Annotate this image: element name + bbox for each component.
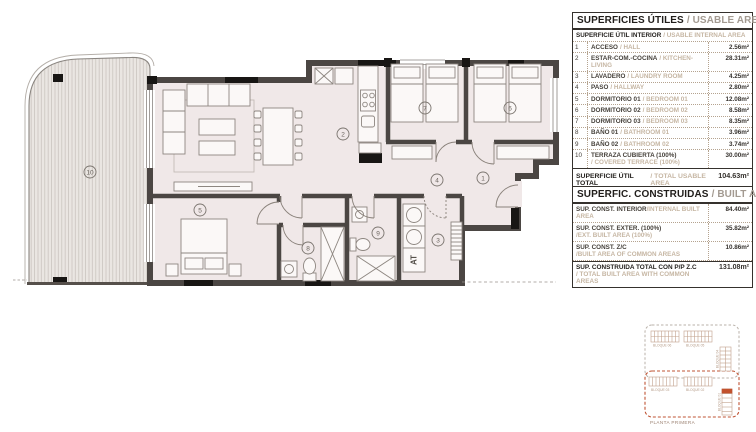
row-value: 28.31m² bbox=[708, 53, 752, 70]
row-value: 3.74m² bbox=[708, 139, 752, 149]
floor-label: PLANTA PRIMERA bbox=[650, 420, 696, 425]
row-value: 3.96m² bbox=[708, 128, 752, 138]
svg-text:3: 3 bbox=[436, 237, 440, 244]
row-name: BAÑO 01/ BATHROOM 01 bbox=[588, 128, 708, 138]
usable-table-title: SUPERFICIES ÚTILES/ USABLE AREA bbox=[573, 13, 752, 30]
table-row: 6DORMITORIO 02/ BEDROOM 028.58m² bbox=[573, 105, 752, 116]
usable-total-value: 104.63m² bbox=[718, 171, 749, 180]
row-name: SUP. CONST. Z/C/BUILT AREA OF COMMON ARE… bbox=[573, 242, 708, 260]
closet bbox=[497, 146, 549, 159]
row-value: 4.25m² bbox=[708, 72, 752, 82]
table-row: SUP. CONST. EXTER. (100%)/EXT. BUILT ARE… bbox=[573, 223, 752, 242]
table-row: 10TERRAZA CUBIERTA (100%)/ COVERED TERRA… bbox=[573, 150, 752, 167]
block-06-label: BLOQUE 06 bbox=[653, 344, 671, 348]
row-value: 2.80m² bbox=[708, 83, 752, 93]
svg-text:10: 10 bbox=[86, 169, 94, 176]
block-02-label: BLOQUE 02 bbox=[686, 388, 704, 392]
row-name: ACCESO/ HALL bbox=[588, 42, 708, 52]
row-value: 12.08m² bbox=[708, 94, 752, 104]
row-number: 4 bbox=[573, 83, 588, 93]
tv-console bbox=[174, 182, 252, 191]
window-bedroom02 bbox=[550, 78, 562, 132]
vent-ladder bbox=[451, 222, 462, 260]
table-row: SUP. CONST. INTERIOR/INTERNAL BUILT AREA… bbox=[573, 204, 752, 223]
highlighted-unit bbox=[722, 389, 732, 394]
svg-text:1: 1 bbox=[481, 175, 485, 182]
toilet-icon bbox=[350, 238, 370, 251]
row-number: 10 bbox=[573, 150, 588, 167]
svg-text:8: 8 bbox=[306, 245, 310, 252]
closet bbox=[392, 146, 432, 159]
terrace-glass-door-living bbox=[144, 90, 155, 168]
shower-icon bbox=[321, 227, 344, 281]
row-name: PASO/ HALLWAY bbox=[588, 83, 708, 93]
table-row: 5DORMITORIO 01/ BEDROOM 0112.08m² bbox=[573, 94, 752, 105]
built-total-row: SUP. CONSTRUIDA TOTAL CON P/P Z.C / TOTA… bbox=[573, 261, 752, 287]
kitchen-counter bbox=[358, 66, 381, 153]
row-value: 10.86m² bbox=[708, 242, 752, 260]
row-number: 1 bbox=[573, 42, 588, 52]
table-row: SUP. CONST. Z/C/BUILT AREA OF COMMON ARE… bbox=[573, 242, 752, 261]
row-value: 8.35m² bbox=[708, 117, 752, 127]
row-name: BAÑO 02/ BATHROOM 02 bbox=[588, 139, 708, 149]
toilet-icon bbox=[303, 258, 316, 281]
table-row: 2ESTAR-COM.-COCINA/ KITCHEN-LIVING28.31m… bbox=[573, 53, 752, 71]
row-name: ESTAR-COM.-COCINA/ KITCHEN-LIVING bbox=[588, 53, 708, 70]
row-name: SUP. CONST. INTERIOR/INTERNAL BUILT AREA bbox=[573, 204, 708, 222]
title-es: SUPERFICIES ÚTILES bbox=[577, 15, 684, 26]
built-area-table: SUPERFIC. CONSTRUIDAS/ BUILT AREA SUP. C… bbox=[572, 186, 753, 288]
row-number: 2 bbox=[573, 53, 588, 70]
block-01-label: BLOQUE 01 bbox=[718, 393, 722, 411]
coffee-table-icon bbox=[199, 119, 235, 135]
table-row: 7DORMITORIO 03/ BEDROOM 038.35m² bbox=[573, 117, 752, 128]
kitchen-cabinet bbox=[359, 143, 381, 153]
row-name: SUP. CONST. EXTER. (100%)/EXT. BUILT ARE… bbox=[573, 223, 708, 241]
row-value: 30.00m² bbox=[708, 150, 752, 167]
table-row: 9BAÑO 02/ BATHROOM 023.74m² bbox=[573, 139, 752, 150]
block-05-label: BLOQUE 05 bbox=[686, 344, 704, 348]
row-name: LAVADERO/ LAUNDRY ROOM bbox=[588, 72, 708, 82]
terrace-glass-door-bedroom01 bbox=[144, 204, 155, 262]
block-05-grid bbox=[684, 331, 712, 342]
nightstand bbox=[166, 264, 178, 276]
terrace-column bbox=[53, 74, 63, 82]
at-label: AT bbox=[410, 255, 419, 265]
table-row: 4PASO/ HALLWAY2.80m² bbox=[573, 83, 752, 94]
built-total-value: 131.08m² bbox=[705, 264, 749, 285]
row-number: 8 bbox=[573, 128, 588, 138]
block-04-grid bbox=[720, 347, 731, 371]
floorplan-sheet: 1 2 3 4 5 6 7 8 9 10 AT bbox=[0, 0, 756, 432]
row-number: 3 bbox=[573, 72, 588, 82]
svg-text:7: 7 bbox=[423, 105, 427, 112]
row-value: 8.58m² bbox=[708, 105, 752, 115]
table-row: 3LAVADERO/ LAUNDRY ROOM4.25m² bbox=[573, 72, 752, 83]
terrace bbox=[13, 53, 154, 284]
row-name: DORMITORIO 03/ BEDROOM 03 bbox=[588, 117, 708, 127]
block-03-grid bbox=[649, 377, 677, 386]
usable-area-table: SUPERFICIES ÚTILES/ USABLE AREA SUPERFIC… bbox=[572, 12, 753, 191]
table-row: 8BAÑO 01/ BATHROOM 013.96m² bbox=[573, 128, 752, 139]
sink-icon bbox=[352, 207, 367, 222]
row-name: DORMITORIO 01/ BEDROOM 01 bbox=[588, 94, 708, 104]
row-value: 84.40m² bbox=[708, 204, 752, 222]
shower-icon bbox=[357, 256, 395, 281]
row-value: 35.82m² bbox=[708, 223, 752, 241]
usable-rows: 1ACCESO/ HALL2.56m²2ESTAR-COM.-COCINA/ K… bbox=[573, 42, 752, 168]
row-number: 7 bbox=[573, 117, 588, 127]
svg-text:6: 6 bbox=[508, 105, 512, 112]
block-01-grid bbox=[722, 389, 732, 415]
block-02-grid bbox=[684, 377, 712, 386]
terrace-edge-mark bbox=[53, 277, 67, 282]
block-03-label: BLOQUE 03 bbox=[651, 388, 669, 392]
row-number: 5 bbox=[573, 94, 588, 104]
built-table-title: SUPERFIC. CONSTRUIDAS/ BUILT AREA bbox=[573, 187, 752, 204]
usable-table-subheader: SUPERFICIE ÚTIL INTERIOR/ USABLE INTERNA… bbox=[573, 30, 752, 42]
row-number: 6 bbox=[573, 105, 588, 115]
key-plan: BLOQUE 06 BLOQUE 05 BLOQUE 04 BLOQUE 03 … bbox=[645, 325, 739, 425]
table-row: 1ACCESO/ HALL2.56m² bbox=[573, 42, 752, 53]
title-en: / USABLE AREA bbox=[687, 15, 756, 26]
coffee-table-icon bbox=[199, 141, 235, 155]
row-value: 2.56m² bbox=[708, 42, 752, 52]
svg-text:4: 4 bbox=[435, 177, 439, 184]
block-04-label: BLOQUE 04 bbox=[716, 350, 720, 368]
nightstand bbox=[229, 264, 241, 276]
svg-text:5: 5 bbox=[198, 207, 202, 214]
sink-icon bbox=[281, 261, 297, 277]
svg-text:9: 9 bbox=[376, 230, 380, 237]
block-06-grid bbox=[651, 331, 679, 342]
row-name: TERRAZA CUBIERTA (100%)/ COVERED TERRACE… bbox=[588, 150, 708, 167]
svg-text:2: 2 bbox=[341, 131, 345, 138]
built-rows: SUP. CONST. INTERIOR/INTERNAL BUILT AREA… bbox=[573, 204, 752, 261]
row-name: DORMITORIO 02/ BEDROOM 02 bbox=[588, 105, 708, 115]
row-number: 9 bbox=[573, 139, 588, 149]
